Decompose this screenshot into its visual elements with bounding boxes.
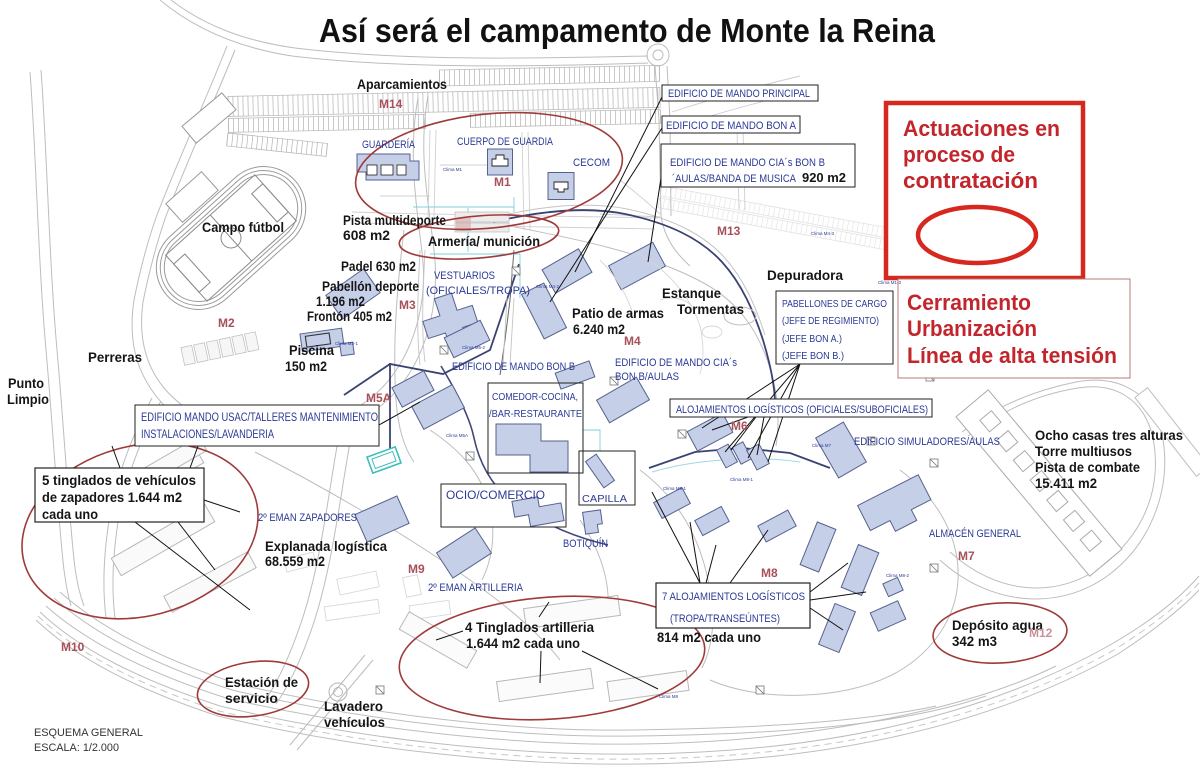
svg-text:M8: M8 [761,566,778,580]
svg-text:M2: M2 [218,316,235,330]
svg-text:Actuaciones en: Actuaciones en [903,116,1060,141]
svg-text:M9: M9 [408,562,425,576]
svg-text:Clima M5-2: Clima M5-2 [462,345,486,350]
svg-text:Frontón 405 m2: Frontón 405 m2 [307,309,392,324]
svg-text:de zapadores 1.644 m2: de zapadores 1.644 m2 [42,490,182,505]
svg-text:4 Tinglados artilleria: 4 Tinglados artilleria [465,620,594,635]
svg-text:M14: M14 [379,97,403,111]
svg-text:Aparcamientos: Aparcamientos [357,77,447,92]
svg-text:Pista multideporte: Pista multideporte [343,213,446,228]
svg-text:´AULAS/BANDA DE MUSICA: ´AULAS/BANDA DE MUSICA [672,173,797,185]
svg-text:Estanque: Estanque [662,286,721,301]
svg-text:Clima M1: Clima M1 [443,167,462,172]
svg-text:Campo fútbol: Campo fútbol [202,220,284,235]
svg-text:EDIFICIO DE MANDO PRINCIPAL: EDIFICIO DE MANDO PRINCIPAL [668,88,810,100]
svg-text:Urbanización: Urbanización [907,316,1037,341]
svg-text:68.559 m2: 68.559 m2 [265,554,325,569]
svg-text:EDIFICIO DE MANDO CIA´s: EDIFICIO DE MANDO CIA´s [615,357,737,369]
svg-text:Pabellón deporte: Pabellón deporte [322,279,419,294]
svg-text:PABELLONES DE CARGO: PABELLONES DE CARGO [782,298,887,310]
svg-text:vehículos: vehículos [324,715,385,730]
svg-text:(TROPA/TRANSEÚNTES): (TROPA/TRANSEÚNTES) [670,612,780,625]
svg-text:Estación de: Estación de [225,675,298,690]
svg-text:CUERPO DE GUARDIA: CUERPO DE GUARDIA [457,136,554,148]
svg-text:Línea de alta tensión: Línea de alta tensión [907,343,1117,368]
svg-text:EDIFICIO DE MANDO BON A: EDIFICIO DE MANDO BON A [666,120,797,132]
svg-text:342 m3: 342 m3 [952,634,997,649]
svg-text:920 m2: 920 m2 [802,170,846,185]
svg-text:Ocho casas tres alturas: Ocho casas tres alturas [1035,428,1183,443]
svg-text:(JEFE BON B.): (JEFE BON B.) [782,350,844,362]
svg-text:EDIFICIO MANDO USAC/TALLERES M: EDIFICIO MANDO USAC/TALLERES MANTENIMIEN… [141,412,378,424]
svg-text:Limpio: Limpio [7,392,49,407]
svg-text:Clima M7: Clima M7 [812,443,831,448]
svg-text:Perreras: Perreras [88,350,142,365]
svg-text:BON B/AULAS: BON B/AULAS [615,371,679,383]
svg-text:Clima M5A: Clima M5A [446,433,468,438]
svg-text:Armería/ munición: Armería/ munición [428,234,540,249]
svg-text:M6: M6 [731,419,748,433]
svg-text:/BAR-RESTAURANTE: /BAR-RESTAURANTE [489,408,582,420]
svg-text:CECOM: CECOM [573,157,610,169]
svg-text:COMEDOR-COCINA,: COMEDOR-COCINA, [492,391,578,403]
svg-text:608 m2: 608 m2 [343,228,390,243]
svg-text:M13: M13 [717,224,741,238]
svg-text:(JEFE DE REGIMIENTO): (JEFE DE REGIMIENTO) [782,315,879,327]
svg-text:contratación: contratación [903,168,1038,193]
svg-text:7 ALOJAMIENTOS LOGÍSTICOS: 7 ALOJAMIENTOS LOGÍSTICOS [662,590,805,603]
svg-text:ESCALA: 1/2.000: ESCALA: 1/2.000 [34,742,119,754]
svg-text:Clima M8-1: Clima M8-1 [730,477,754,482]
svg-text:M4: M4 [624,334,641,348]
svg-text:servicio: servicio [225,691,278,706]
svg-text:Clima M8: Clima M8 [659,694,678,699]
svg-text:6.240 m2: 6.240 m2 [573,322,625,337]
svg-text:Torre multiusos: Torre multiusos [1035,444,1132,459]
svg-text:Clima M4-3: Clima M4-3 [811,231,835,236]
svg-text:ALOJAMIENTOS LOGÍSTICOS (OFICI: ALOJAMIENTOS LOGÍSTICOS (OFICIALES/SUBOF… [676,403,928,416]
svg-text:M10: M10 [61,640,85,654]
svg-text:Patio de armas: Patio de armas [572,306,664,321]
svg-text:Cerramiento: Cerramiento [907,290,1031,315]
svg-text:M1: M1 [494,175,511,189]
svg-text:814 m2 cada uno: 814 m2 cada uno [657,630,761,645]
svg-text:ESQUEMA GENERAL: ESQUEMA GENERAL [34,727,143,739]
svg-text:1.644 m2 cada uno: 1.644 m2 cada uno [466,636,580,651]
svg-text:Piscina: Piscina [289,343,334,358]
svg-text:EDIFICIO DE MANDO BON B: EDIFICIO DE MANDO BON B [452,361,575,373]
svg-text:Tormentas: Tormentas [677,302,744,317]
svg-text:Padel 630 m2: Padel 630 m2 [341,259,416,274]
svg-text:M3: M3 [399,298,416,312]
svg-text:5 tinglados de vehículos: 5 tinglados de vehículos [42,473,196,488]
svg-text:Así será el campamento de Mont: Así será el campamento de Monte la Reina [319,12,936,49]
svg-text:M12: M12 [1029,626,1053,640]
svg-text:150 m2: 150 m2 [285,359,327,374]
svg-text:INSTALACIONES/LAVANDERIA: INSTALACIONES/LAVANDERIA [141,429,274,441]
svg-text:Clima M3-1: Clima M3-1 [335,341,359,346]
svg-text:VESTUARIOS: VESTUARIOS [434,270,495,282]
svg-text:BOTIQUÍN: BOTIQUÍN [563,537,608,550]
svg-text:Lavadero: Lavadero [324,699,383,714]
svg-text:M7: M7 [958,549,975,563]
svg-text:GUARDERÍA: GUARDERÍA [362,138,416,151]
svg-text:(OFICIALES/TROPA): (OFICIALES/TROPA) [426,285,530,297]
svg-text:(JEFE BON A.): (JEFE BON A.) [782,333,842,345]
svg-text:EDIFICIO DE MANDO CIA´s BON B: EDIFICIO DE MANDO CIA´s BON B [670,157,825,169]
svg-text:15.411 m2: 15.411 m2 [1035,476,1097,491]
svg-text:EDIFICIO SIMULADORES/AULAS: EDIFICIO SIMULADORES/AULAS [854,436,1000,448]
svg-text:Clima M9-1: Clima M9-1 [663,486,687,491]
svg-text:Clima M8-2: Clima M8-2 [886,573,910,578]
svg-text:1.196 m2: 1.196 m2 [316,294,365,309]
svg-text:CAPILLA: CAPILLA [582,493,627,505]
svg-text:Explanada logística: Explanada logística [265,539,387,554]
svg-text:Depuradora: Depuradora [767,268,843,283]
svg-text:2º EMAN ARTILLERIA: 2º EMAN ARTILLERIA [428,582,524,594]
svg-text:cada uno: cada uno [42,507,98,522]
svg-text:OCIO/COMERCIO: OCIO/COMERCIO [446,488,545,502]
svg-text:2º EMAN ZAPADORES: 2º EMAN ZAPADORES [258,512,357,524]
svg-text:M5A: M5A [366,391,392,405]
svg-text:proceso de: proceso de [903,142,1015,167]
svg-text:ALMACÉN GENERAL: ALMACÉN GENERAL [929,527,1021,540]
svg-text:Pista de combate: Pista de combate [1035,460,1140,475]
svg-text:Clima M4-2: Clima M4-2 [536,284,560,289]
svg-text:Punto: Punto [8,376,44,391]
svg-text:Clima M1-3: Clima M1-3 [878,280,902,285]
